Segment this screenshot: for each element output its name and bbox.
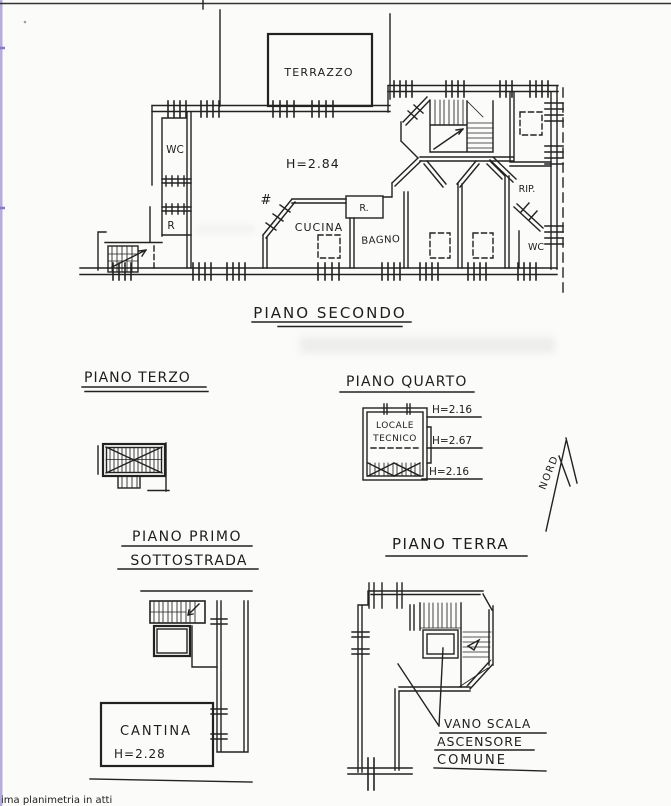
- ceiling-height-label: H=2.84: [286, 156, 340, 171]
- footer-note: ima planimetria in atti: [1, 795, 112, 806]
- scan-artifacts: [0, 0, 671, 806]
- piano-terra-title: PIANO TERRA: [392, 535, 509, 553]
- left-wall: [150, 106, 152, 242]
- cucina-door-ticks: [266, 205, 290, 230]
- piano-quarto-title: PIANO QUARTO: [346, 374, 468, 390]
- connector-walls: [192, 626, 217, 667]
- scanned-floorplan-page: TERRAZZO WC R H=2.84 # CUCINA R. BAGNO R…: [0, 0, 671, 806]
- scan-edge-line: [0, 0, 3, 806]
- hall-diagonal: [383, 158, 421, 197]
- piano-terra-plan: PIANO TERRA VANO SCALA ASCENSORE COMUNE: [348, 535, 546, 790]
- piano-secondo-title: PIANO SECONDO: [253, 304, 406, 322]
- north-arrow: [546, 438, 577, 531]
- ripostiglio-center-label: R.: [359, 203, 368, 214]
- scan-speck: [24, 21, 27, 24]
- window-ticks-bottom: [113, 263, 536, 280]
- locale-tecnico-label-1: LOCALE: [376, 421, 414, 431]
- stair-hatch-diagonals: [368, 463, 420, 476]
- height-bottom-label: H=2.16: [429, 466, 469, 478]
- wc-left-label: WC: [166, 144, 184, 156]
- flue-dashed-box: [520, 112, 542, 135]
- nord-compass: NORD: [538, 438, 577, 531]
- top-wall-ticks: [369, 583, 402, 608]
- small-room-outline: [154, 626, 190, 656]
- bagno-label: BAGNO: [361, 234, 401, 247]
- window-mark: #: [261, 193, 272, 208]
- wc-right-label: WC: [528, 242, 544, 253]
- piano-primo-plan: PIANO PRIMO SOTTOSTRADA CANTINA H=2.28: [90, 529, 258, 782]
- piano-terzo-title: PIANO TERZO: [84, 370, 191, 386]
- stair-bottom-wall: [420, 157, 513, 161]
- center-room-walls: [424, 161, 509, 268]
- terrazzo-label: TERRAZZO: [283, 66, 353, 79]
- left-wall-ticks: [352, 632, 369, 654]
- piano-quarto-plan: PIANO QUARTO LOCALE TECNICO H=2.16 H=2.6…: [340, 374, 482, 480]
- scan-smudge: [195, 224, 255, 234]
- locale-tecnico-label-2: TECNICO: [372, 434, 417, 444]
- floorplan-drawing: TERRAZZO WC R H=2.84 # CUCINA R. BAGNO R…: [0, 0, 671, 806]
- piano-terzo-plan: PIANO TERZO: [82, 370, 208, 491]
- stair-arrowhead: [468, 640, 479, 650]
- scan-smudge: [300, 337, 555, 353]
- height-mid-label: H=2.67: [432, 435, 472, 447]
- callout-underline-3: [434, 768, 546, 771]
- flue-dashed-box: [318, 235, 340, 258]
- small-room-inner: [157, 629, 187, 653]
- stair-walls: [430, 101, 493, 152]
- rip-door-ticks: [521, 203, 537, 220]
- callout-ascensore: ASCENSORE: [437, 734, 523, 749]
- landing-treads: [122, 476, 137, 488]
- nord-label: NORD: [538, 454, 562, 491]
- cantina-label: CANTINA: [120, 724, 192, 739]
- window-ticks-right: [545, 103, 563, 244]
- height-top-label: H=2.16: [432, 404, 472, 416]
- ripostiglio-right-label: RIP.: [519, 184, 536, 195]
- stair-treads: [435, 100, 493, 148]
- piano-primo-title-2: SOTTOSTRADA: [130, 553, 247, 569]
- flue-dashed-box: [430, 233, 450, 258]
- window-ticks-top-left: [168, 101, 333, 117]
- callout-comune: COMUNE: [437, 753, 507, 768]
- piano-primo-title-1: PIANO PRIMO: [132, 529, 242, 545]
- locale-tecnico-outline: [363, 408, 427, 480]
- stair-arrow: [434, 129, 463, 149]
- stair-treads-top: [420, 603, 461, 628]
- stair-treads-right: [459, 632, 491, 687]
- piano-secondo-plan: TERRAZZO WC R H=2.84 # CUCINA R. BAGNO R…: [80, 10, 563, 327]
- cantina-height-label: H=2.28: [114, 747, 166, 761]
- ripostiglio-left-label: R: [167, 220, 174, 232]
- right-wall: [551, 86, 557, 269]
- stair-hatch: [370, 463, 420, 476]
- bottom-boundary-line: [90, 779, 252, 782]
- window-ticks-top-right: [394, 81, 548, 97]
- entry-door-ticks: [408, 105, 423, 119]
- flue-dashed-box: [473, 233, 493, 258]
- top-wall-right: [388, 86, 558, 92]
- callout-vano-scala: VANO SCALA: [444, 717, 531, 731]
- door-ticks: [166, 176, 184, 214]
- entry-stair-treads: [108, 246, 138, 272]
- boundary-lines: [220, 10, 390, 106]
- cucina-label: CUCINA: [295, 221, 343, 234]
- lift-shaft-inner: [427, 634, 454, 654]
- north-arrow-inner: [559, 456, 570, 486]
- wc-block-walls: [162, 112, 191, 268]
